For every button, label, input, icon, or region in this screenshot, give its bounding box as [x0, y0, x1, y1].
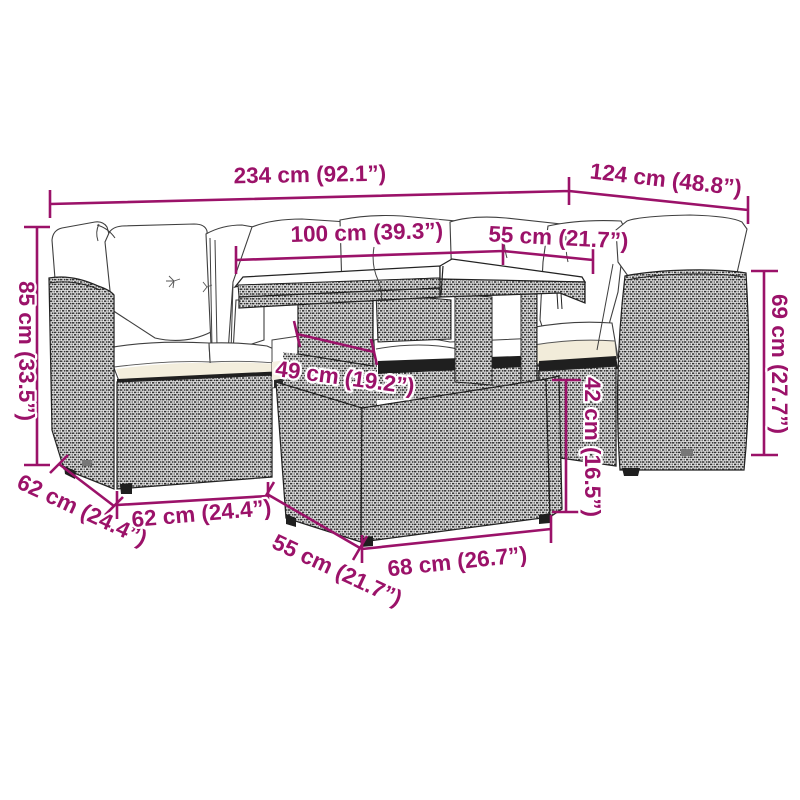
svg-text:85 cm (33.5”): 85 cm (33.5”): [14, 281, 39, 421]
svg-text:69 cm (27.7”): 69 cm (27.7”): [767, 294, 792, 434]
svg-text:100 cm (39.3”): 100 cm (39.3”): [290, 218, 443, 247]
svg-text:234 cm (92.1”): 234 cm (92.1”): [233, 161, 386, 189]
svg-text:42 cm (16.5”): 42 cm (16.5”): [580, 377, 605, 517]
